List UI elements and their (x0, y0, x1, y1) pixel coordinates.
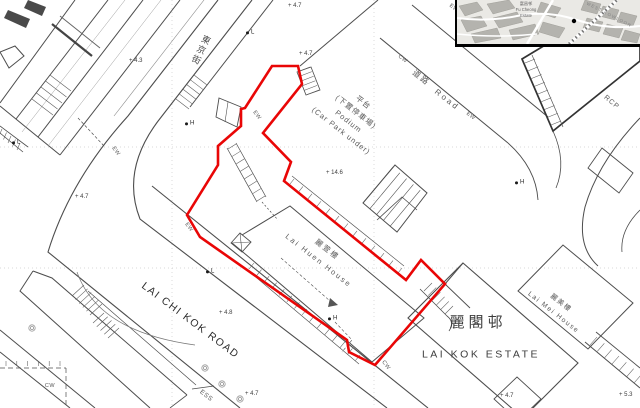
map-label-fu-cheong-estate: 富昌邨 Fu Cheong Estate (516, 1, 537, 19)
site-boundary-polygon (187, 66, 445, 365)
tree-symbols (29, 325, 243, 402)
stair-hatching (0, 59, 640, 383)
inset-overview-map: 富昌邨 Fu Cheong EstateWEST KOWLOON (455, 0, 640, 47)
survey-map-canvas: 東京街平台 (下置停車場) Podium (Car Park under)道路R… (0, 0, 640, 408)
map-linework (0, 0, 640, 408)
inset-linework (457, 0, 640, 44)
inset-location-dot (572, 19, 576, 23)
street-linework (0, 0, 640, 408)
dark-buildings (4, 0, 46, 28)
